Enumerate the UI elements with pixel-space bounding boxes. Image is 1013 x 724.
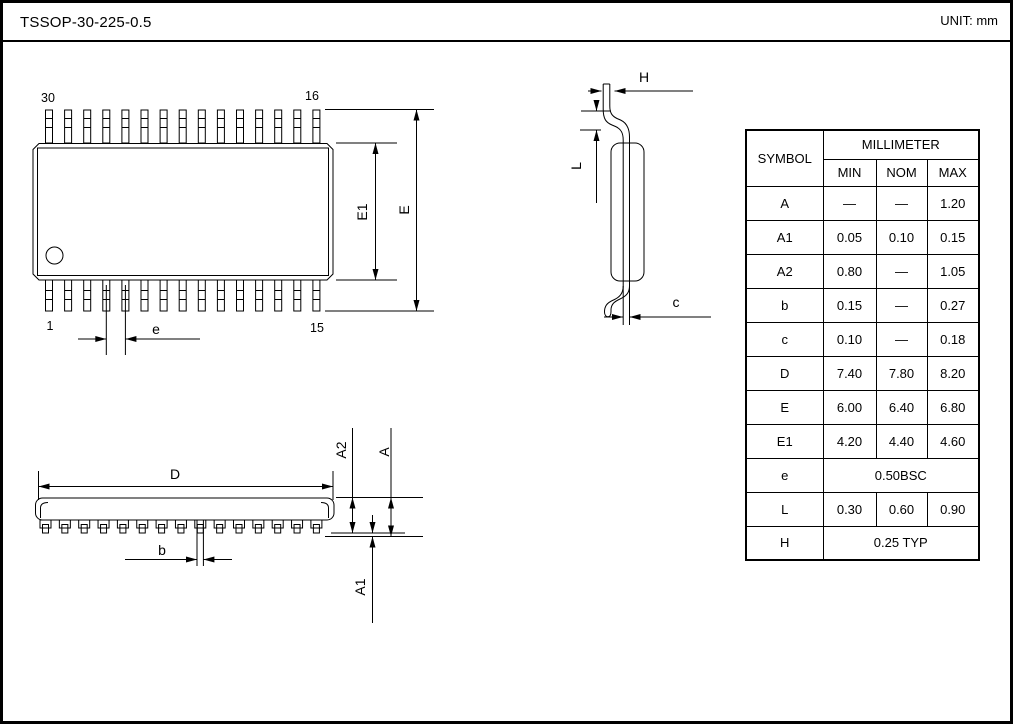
symbol-cell: A2 — [746, 254, 823, 288]
pitch-dimension: e — [78, 285, 200, 355]
side-view-lead-top-inner — [610, 84, 630, 325]
table-cell: 6.00 — [823, 390, 876, 424]
symbol-cell: c — [746, 322, 823, 356]
l-dim-label: L — [568, 162, 584, 170]
pin — [198, 280, 205, 311]
front-view-body — [36, 498, 335, 520]
table-cell: 0.80 — [823, 254, 876, 288]
table-cell: 1.20 — [927, 186, 979, 220]
c-dim-label: c — [673, 294, 680, 310]
pin — [101, 525, 107, 534]
pin-number-16: 16 — [305, 89, 319, 103]
pin-number-1: 1 — [47, 319, 54, 333]
symbol-cell: A1 — [746, 220, 823, 254]
table-row: A——1.20 — [746, 186, 979, 220]
pin — [313, 280, 320, 311]
pin — [313, 525, 319, 534]
pin — [294, 525, 300, 534]
pin — [46, 110, 53, 143]
pin1-marker — [46, 247, 63, 264]
pin — [62, 525, 68, 534]
table-cell: — — [876, 322, 927, 356]
pin — [313, 110, 320, 143]
pin — [294, 280, 301, 311]
table-cell-span: 0.25 TYP — [823, 526, 979, 560]
table-cell: 0.10 — [876, 220, 927, 254]
table-cell: — — [823, 186, 876, 220]
pin — [141, 280, 148, 311]
pin — [236, 525, 242, 534]
symbol-cell: b — [746, 288, 823, 322]
symbol-cell: H — [746, 526, 823, 560]
table-cell: 7.40 — [823, 356, 876, 390]
table-cell: — — [876, 254, 927, 288]
a-dim-label: A — [376, 447, 392, 457]
table-cell: — — [876, 288, 927, 322]
table-row: e0.50BSC — [746, 458, 979, 492]
table-cell-span: 0.50BSC — [823, 458, 979, 492]
pin — [197, 525, 203, 534]
symbol-cell: L — [746, 492, 823, 526]
table-cell: 0.05 — [823, 220, 876, 254]
d-dimension: D — [39, 466, 334, 500]
drawing-sheet: TSSOP-30-225-0.5 UNIT: mm 30 16 1 15 E1 — [0, 0, 1013, 724]
table-cell: 8.20 — [927, 356, 979, 390]
min-header: MIN — [823, 159, 876, 186]
pin — [139, 525, 145, 534]
pin — [255, 525, 261, 534]
a1-dim-label: A1 — [352, 578, 368, 595]
max-header: MAX — [927, 159, 979, 186]
a-dimension: A — [376, 428, 392, 537]
table-row: E6.006.406.80 — [746, 390, 979, 424]
pin — [294, 110, 301, 143]
table-row: b0.15—0.27 — [746, 288, 979, 322]
dimension-table: SYMBOL MILLIMETER MIN NOM MAX A——1.20 A1… — [745, 129, 980, 561]
table-row: c0.10—0.18 — [746, 322, 979, 356]
top-view-body-outer — [33, 144, 333, 281]
table-cell: 0.18 — [927, 322, 979, 356]
h-dimension: H — [588, 69, 693, 91]
table-cell: 0.15 — [927, 220, 979, 254]
nom-header: NOM — [876, 159, 927, 186]
table-row: D7.407.808.20 — [746, 356, 979, 390]
table-cell: 1.05 — [927, 254, 979, 288]
pin — [179, 110, 186, 143]
pin — [141, 110, 148, 143]
table-cell: 6.40 — [876, 390, 927, 424]
pitch-dim-label: e — [152, 321, 160, 337]
a2-dim-label: A2 — [333, 441, 349, 458]
a2-dimension: A2 — [333, 428, 353, 533]
symbol-cell: E — [746, 390, 823, 424]
pin — [178, 525, 184, 534]
pin-number-15: 15 — [310, 321, 324, 335]
symbol-cell: D — [746, 356, 823, 390]
front-view: D b A2 A — [36, 428, 424, 623]
l-dimension: L — [568, 101, 611, 203]
table-row: A10.050.100.15 — [746, 220, 979, 254]
e-dim-label: E — [396, 205, 412, 214]
pin — [84, 280, 91, 311]
table-cell: 4.60 — [927, 424, 979, 458]
pin — [65, 280, 72, 311]
pin — [160, 110, 167, 143]
pin — [275, 525, 281, 534]
top-view-pins — [46, 110, 320, 311]
pin — [256, 280, 263, 311]
table-cell: 4.20 — [823, 424, 876, 458]
pin — [122, 110, 129, 143]
side-view: H L c — [568, 69, 711, 325]
pin — [217, 525, 223, 534]
symbol-header: SYMBOL — [746, 130, 823, 186]
side-view-lead-bottom — [605, 286, 630, 317]
h-dim-label: H — [639, 69, 649, 85]
pin — [179, 280, 186, 311]
table-cell: 6.80 — [927, 390, 979, 424]
pin — [275, 110, 282, 143]
table-row: E14.204.404.60 — [746, 424, 979, 458]
pin — [65, 110, 72, 143]
d-dim-label: D — [170, 466, 180, 482]
pin — [256, 110, 263, 143]
pin — [237, 110, 244, 143]
pin — [160, 280, 167, 311]
top-view: 30 16 1 15 E1 E e — [33, 89, 434, 355]
table-cell: 0.10 — [823, 322, 876, 356]
table-cell: 0.30 — [823, 492, 876, 526]
pin — [217, 280, 224, 311]
symbol-cell: E1 — [746, 424, 823, 458]
table-row: H0.25 TYP — [746, 526, 979, 560]
pin — [237, 280, 244, 311]
pin — [46, 280, 53, 311]
b-dimension: b — [125, 520, 232, 566]
pin — [198, 110, 205, 143]
table-cell: — — [876, 186, 927, 220]
table-cell: 7.80 — [876, 356, 927, 390]
pin-number-30: 30 — [41, 91, 55, 105]
pin — [217, 110, 224, 143]
front-view-pins — [40, 520, 322, 533]
pin — [103, 110, 110, 143]
table-cell: 4.40 — [876, 424, 927, 458]
e1-dimension: E1 — [336, 143, 397, 280]
side-view-body — [611, 143, 644, 281]
e1-dim-label: E1 — [354, 203, 370, 220]
pin — [84, 110, 91, 143]
pin — [159, 525, 165, 534]
table-row: L0.300.600.90 — [746, 492, 979, 526]
top-view-body-inner — [38, 148, 329, 276]
b-dim-label: b — [158, 542, 166, 558]
table-cell: 0.90 — [927, 492, 979, 526]
table-row: A20.80—1.05 — [746, 254, 979, 288]
symbol-cell: A — [746, 186, 823, 220]
millimeter-header: MILLIMETER — [823, 130, 979, 159]
c-dimension: c — [604, 294, 711, 317]
pin — [81, 525, 87, 534]
a1-dimension: A1 — [352, 515, 373, 623]
symbol-cell: e — [746, 458, 823, 492]
pin — [120, 525, 126, 534]
pin — [43, 525, 49, 534]
table-cell: 0.15 — [823, 288, 876, 322]
table-cell: 0.60 — [876, 492, 927, 526]
table-cell: 0.27 — [927, 288, 979, 322]
e-dimension: E — [325, 110, 434, 312]
pin — [275, 280, 282, 311]
